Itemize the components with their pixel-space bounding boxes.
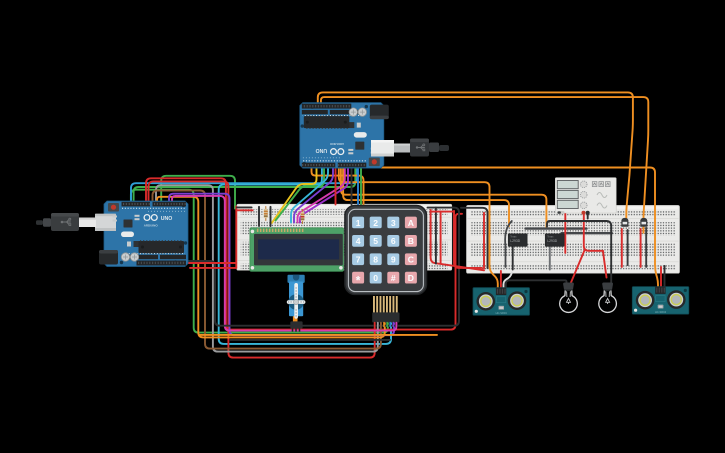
svg-text:#: # <box>391 273 396 283</box>
svg-text:L293D: L293D <box>547 239 558 243</box>
svg-text:8: 8 <box>373 255 378 265</box>
svg-text:ARDUINO: ARDUINO <box>144 223 159 227</box>
svg-text:1: 1 <box>356 218 361 228</box>
svg-text:B: B <box>408 236 414 246</box>
svg-text:ARDUINO: ARDUINO <box>329 142 344 146</box>
svg-text:L293D: L293D <box>510 239 521 243</box>
svg-text:C: C <box>408 255 414 265</box>
svg-text:9: 9 <box>391 255 396 265</box>
svg-text:D: D <box>408 273 414 283</box>
svg-text:A: A <box>408 218 414 228</box>
svg-text:*: * <box>356 273 361 287</box>
svg-text:0: 0 <box>373 273 378 283</box>
svg-text:3: 3 <box>391 218 396 228</box>
svg-text:HC-SR04: HC-SR04 <box>496 311 508 315</box>
svg-text:7: 7 <box>356 255 361 265</box>
svg-text:2: 2 <box>373 218 378 228</box>
svg-text:UNO: UNO <box>161 216 173 222</box>
svg-text:HC-SR04: HC-SR04 <box>655 310 667 314</box>
svg-text:UNO: UNO <box>316 147 328 153</box>
svg-text:6: 6 <box>391 236 396 246</box>
svg-text:5: 5 <box>373 236 378 246</box>
svg-text:4: 4 <box>356 236 361 246</box>
